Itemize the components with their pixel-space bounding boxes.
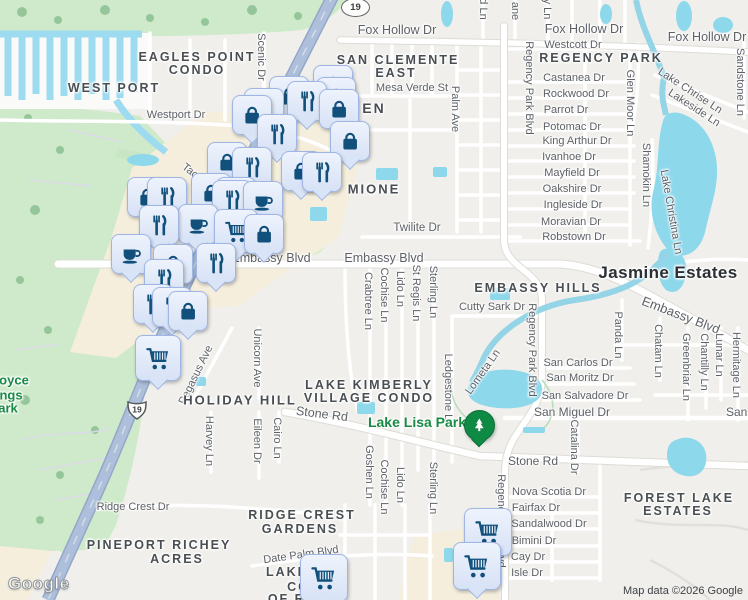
svg-text:19: 19 [132,405,142,415]
street-label: Regency Park Blvd [526,303,538,397]
street-label: Moravian Dr [541,216,601,228]
street-label: Nova Scotia Dr [512,486,586,498]
route-shield-label: 19 [341,0,370,17]
street-label: Embassy Blvd [344,251,423,265]
street-label: St Regis Ln [410,265,422,322]
street-label: Cutty Sark Dr [459,301,525,313]
fork-icon [295,89,319,113]
neighborhood-label: PINEPORT RICHEY [87,538,232,552]
street-label: Unicorn Ave [251,328,263,387]
city-label: Jasmine Estates [598,263,737,283]
coffee-icon [186,212,210,236]
park-label: ark [0,401,18,416]
neighborhood-label: FOREST LAKE [624,491,734,505]
poi-pin-coffee[interactable] [178,204,218,244]
street-label: Castanea Dr [543,72,605,84]
street-label: Robstown Dr [542,231,606,243]
bag-icon [338,129,362,153]
poi-pin-cart[interactable] [453,542,501,590]
street-label: Shamokin Ln [640,143,652,207]
street-label: Fox Hollow Dr [358,23,437,37]
street-label: Ivanhoe Dr [542,151,596,163]
cart-icon [144,344,172,372]
bag-icon [327,97,351,121]
neighborhood-label: SAN CLEMENTE [337,53,460,67]
neighborhood-label: VILLAGE CONDO [304,391,434,405]
street-label: Westcott Dr [544,39,601,51]
coffee-icon [119,242,143,266]
fork-icon [147,213,171,237]
neighborhood-label: EMBASSY HILLS [474,281,601,295]
google-logo[interactable]: Google [8,574,70,594]
street-label: Eileen Dr [251,418,263,463]
street-label: Crabtree Ln [362,272,374,330]
poi-pin-park[interactable] [464,410,495,441]
street-label: Sandstone Ln [734,48,746,116]
street-label: Oakshire Dr [543,183,602,195]
street-label: Potomac Dr [543,121,601,133]
fork-icon [265,122,289,146]
cart-icon [309,563,338,592]
street-label: Mesa Verde St [376,82,448,94]
street-label: Sandalwood Dr [511,518,586,530]
bag-icon [176,299,200,323]
street-label: Panda Ln [612,311,624,358]
street-label: Fox Hollow Dr [545,22,624,36]
street-label: Cay Dr [511,551,545,563]
map-attribution: Map data ©2026 Google [623,585,743,597]
street-label: Parrot Dr [544,104,589,116]
street-label: San Salvadore Dr [542,390,629,402]
neighborhood-label: HOLIDAY HILL [183,393,297,408]
street-label: Sterling Ln [427,462,439,515]
park-label: oyce [0,373,29,388]
street-label: Westport Dr [147,109,205,121]
fork-icon [204,251,228,275]
street-label: Cochise Ln [378,459,390,514]
neighborhood-label: WEST PORT [68,81,160,95]
neighborhood-label: CONDO [169,63,226,77]
neighborhood-label: MIONE [348,182,401,197]
street-label: Chatam Ln [652,324,664,378]
street-label: Catalina Dr [568,419,580,474]
route-19-shield: 19 [341,0,370,17]
park-label: Lake Lisa Park [368,414,466,430]
street-label: Cairo Ln [271,417,283,459]
cart-icon [462,551,491,580]
fork-icon [310,160,334,184]
street-label: Hermitage Ln [730,332,742,398]
street-label: y Ln [541,0,553,19]
neighborhood-label: LAKE KIMBERLY [305,378,433,392]
poi-pin-bag[interactable] [244,214,284,254]
street-label: Lido Ln [394,271,406,307]
neighborhood-label: RIDGE CREST [248,508,355,522]
map-canvas[interactable]: Google Map data ©2026 Google Fox Hollow … [0,0,748,600]
street-label: Rockwood Dr [543,88,609,100]
street-label: Bimini Dr [512,535,557,547]
street-label: Glen Moor Ln [624,70,636,137]
street-label: Ingleside Dr [544,199,603,211]
street-label: Sterling Ln [427,266,439,319]
street-label: Lunar Ln [713,333,725,376]
street-label: San Miguel Dr [726,405,748,419]
street-label: Goshen Ln [363,445,375,499]
us-route-shield-icon: 19 [125,399,149,421]
street-label: Scenic Dr [255,33,267,81]
park-icon [470,416,489,435]
street-label: Stone Rd [508,454,558,468]
street-label: Fox Hollow Dr [668,30,747,44]
street-label: Palm Ave [449,86,461,132]
neighborhood-label: REGENCY PARK [539,51,663,65]
street-label: Regency Park Blvd [523,41,535,135]
poi-pin-cart[interactable] [300,554,348,600]
street-label: ane [509,2,521,20]
street-label: Ridge Crest Dr [97,501,170,513]
street-label: Mayfield Dr [544,167,600,179]
neighborhood-label: EAGLES POINT [138,50,255,64]
street-label: King Arthur Dr [542,135,611,147]
street-label: d Ln [477,0,489,20]
poi-pin-cart[interactable] [135,335,181,381]
street-label: Isle Dr [511,567,543,579]
street-label: Cochise Ln [378,267,390,322]
street-label: San Carlos Dr [543,357,612,369]
bag-icon [252,222,276,246]
neighborhood-label: ESTATES [643,504,713,518]
poi-pin-fork[interactable] [196,243,236,283]
poi-pin-bag[interactable] [168,291,208,331]
fork-icon [240,155,264,179]
street-label: Greenbriar Ln [680,333,692,401]
neighborhood-label: GARDENS [262,522,339,536]
neighborhood-label: EN [362,100,385,116]
street-label: San Miguel Dr [534,405,610,419]
street-label: Harvey Ln [203,416,215,466]
neighborhood-label: EAST [375,66,416,80]
street-label: Lido Ln [394,467,406,503]
route-19-shield: 19 [125,399,149,426]
street-label: Chantilly Ln [698,333,710,390]
street-label: San Moritz Dr [546,372,613,384]
neighborhood-label: ACRES [150,552,204,566]
street-label: Fairfax Dr [512,502,560,514]
poi-pin-fork[interactable] [302,152,342,192]
street-label: Twilite Dr [393,222,440,234]
